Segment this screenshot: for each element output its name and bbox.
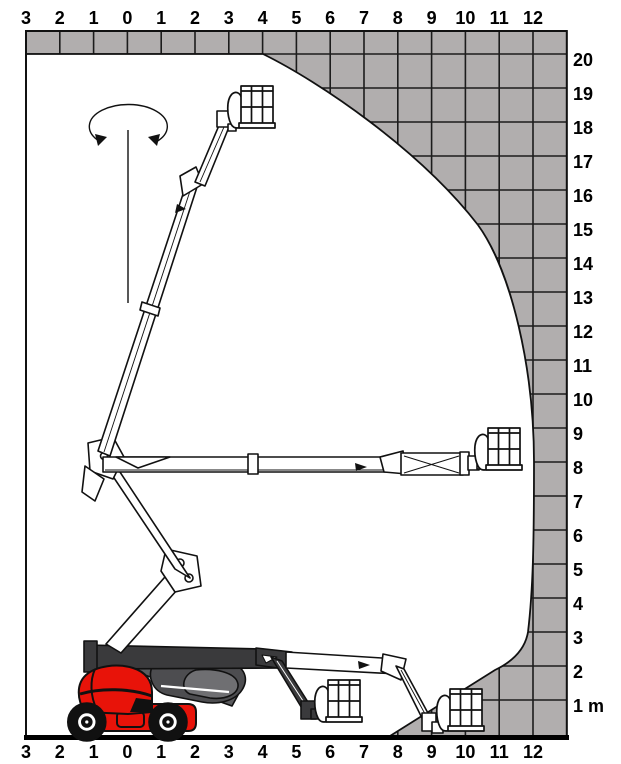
axis-label: 13 bbox=[573, 287, 593, 309]
axis-label: 8 bbox=[393, 741, 403, 763]
axis-label: 1 bbox=[156, 741, 166, 763]
axis-label: 0 bbox=[122, 741, 132, 763]
axis-label: 3 bbox=[224, 7, 234, 29]
axis-label: 12 bbox=[523, 7, 543, 29]
axis-label: 2 bbox=[190, 741, 200, 763]
wheel bbox=[149, 703, 187, 741]
wheel bbox=[68, 703, 106, 741]
working-envelope-diagram: 3210123456789101112 3210123456789101112 … bbox=[0, 0, 621, 764]
axis-label: 10 bbox=[455, 741, 475, 763]
axis-label: 2 bbox=[573, 661, 583, 683]
axis-label: 1 m bbox=[573, 695, 604, 717]
axis-label: 11 bbox=[573, 355, 592, 377]
axis-label: 9 bbox=[427, 7, 437, 29]
axis-label: 3 bbox=[224, 741, 234, 763]
axis-label: 9 bbox=[427, 741, 437, 763]
axis-label: 14 bbox=[573, 253, 593, 275]
axis-label: 17 bbox=[573, 151, 593, 173]
axis-label: 11 bbox=[490, 741, 509, 763]
axis-label: 1 bbox=[89, 741, 99, 763]
axis-label: 0 bbox=[122, 7, 132, 29]
axis-label: 10 bbox=[573, 389, 593, 411]
axis-label: 11 bbox=[490, 7, 509, 29]
axis-label: 5 bbox=[291, 7, 301, 29]
axis-label: 16 bbox=[573, 185, 593, 207]
axis-label: 9 bbox=[573, 423, 583, 445]
axis-label: 6 bbox=[325, 741, 335, 763]
axis-label: 6 bbox=[573, 525, 583, 547]
axis-label: 12 bbox=[573, 321, 593, 343]
axis-label: 19 bbox=[573, 83, 593, 105]
axis-label: 18 bbox=[573, 117, 593, 139]
ground-line bbox=[24, 735, 569, 740]
axis-label: 15 bbox=[573, 219, 593, 241]
axis-label: 4 bbox=[258, 741, 268, 763]
axis-label: 2 bbox=[190, 7, 200, 29]
axis-label: 3 bbox=[573, 627, 583, 649]
axis-label: 5 bbox=[573, 559, 583, 581]
axis-label: 3 bbox=[21, 7, 31, 29]
axis-label: 7 bbox=[359, 7, 369, 29]
axis-label: 10 bbox=[455, 7, 475, 29]
axis-label: 12 bbox=[523, 741, 543, 763]
axis-label: 4 bbox=[573, 593, 583, 615]
axis-label: 2 bbox=[55, 741, 65, 763]
envelope-diagram-svg bbox=[0, 0, 621, 764]
axis-label: 5 bbox=[291, 741, 301, 763]
axis-label: 6 bbox=[325, 7, 335, 29]
axis-label: 20 bbox=[573, 49, 593, 71]
axis-label: 8 bbox=[573, 457, 583, 479]
axis-label: 3 bbox=[21, 741, 31, 763]
axis-label: 2 bbox=[55, 7, 65, 29]
axis-label: 8 bbox=[393, 7, 403, 29]
axis-label: 1 bbox=[156, 7, 166, 29]
axis-label: 1 bbox=[89, 7, 99, 29]
axis-label: 7 bbox=[573, 491, 583, 513]
axis-label: 7 bbox=[359, 741, 369, 763]
axis-label: 4 bbox=[258, 7, 268, 29]
